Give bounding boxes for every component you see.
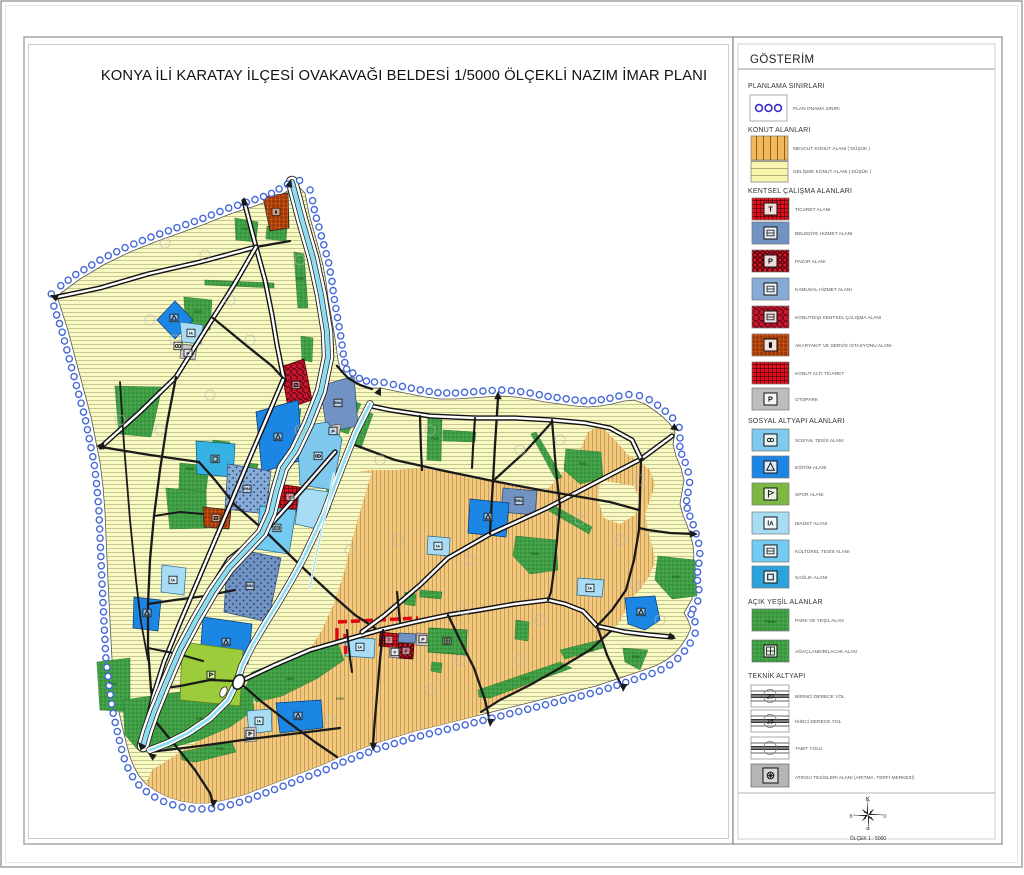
svg-text:PAZAR ALANI: PAZAR ALANI — [795, 259, 826, 265]
svg-text:OTOPARK: OTOPARK — [795, 397, 819, 403]
svg-text:P: P — [768, 395, 773, 404]
svg-text:KAMUSAL HİZMET ALANI: KAMUSAL HİZMET ALANI — [795, 286, 852, 293]
svg-text:BHA: BHA — [335, 401, 343, 405]
svg-text:B: B — [849, 814, 852, 819]
svg-text:KONUT ALANLARI: KONUT ALANLARI — [748, 127, 811, 134]
svg-text:BİRİNCİ DERECE YOL: BİRİNCİ DERECE YOL — [795, 693, 845, 700]
svg-text:PARK: PARK — [521, 677, 530, 681]
svg-text:ATIKSU TESİSLERİ ALANI (ARITMA: ATIKSU TESİSLERİ ALANI (ARITMA, TERFİ ME… — [795, 774, 915, 781]
svg-text:KENTSEL ÇALIŞMA ALANLARI: KENTSEL ÇALIŞMA ALANLARI — [748, 188, 852, 195]
svg-text:TİCARET ALANI: TİCARET ALANI — [795, 206, 830, 213]
svg-text:GELİŞME KONUT ALANI ( DÜŞÜK ): GELİŞME KONUT ALANI ( DÜŞÜK ) — [793, 168, 872, 175]
svg-text:SPOR ALANI: SPOR ALANI — [795, 492, 824, 498]
svg-text:PARK: PARK — [579, 462, 588, 466]
svg-text:P: P — [768, 257, 773, 266]
svg-text:İA: İA — [588, 586, 592, 591]
svg-text:KONUT ALTI TİCARET: KONUT ALTI TİCARET — [795, 370, 844, 377]
svg-text:PLAN ONAMA SINIRI: PLAN ONAMA SINIRI — [793, 106, 840, 112]
svg-text:PARK: PARK — [296, 277, 305, 281]
svg-text:KONUTDIŞI KENTSEL ÇALIŞMA ALAN: KONUTDIŞI KENTSEL ÇALIŞMA ALANI — [795, 315, 881, 321]
svg-text:İA: İA — [767, 519, 774, 527]
svg-text:PARK: PARK — [109, 682, 118, 686]
svg-text:PARK: PARK — [586, 649, 595, 653]
svg-text:T: T — [289, 495, 292, 501]
svg-text:İBADET ALANI: İBADET ALANI — [795, 520, 827, 527]
svg-text:PARK: PARK — [336, 697, 345, 701]
svg-text:20: 20 — [766, 693, 774, 700]
svg-text:15: 15 — [766, 718, 774, 725]
svg-text:BHA: BHA — [244, 487, 252, 491]
svg-text:PARK: PARK — [196, 717, 205, 721]
svg-text:İA: İA — [171, 578, 175, 583]
svg-text:PARK: PARK — [765, 619, 776, 624]
svg-text:AÇIK YEŞİL ALANLAR: AÇIK YEŞİL ALANLAR — [748, 597, 823, 606]
svg-text:PARK: PARK — [431, 437, 440, 441]
svg-text:PARK: PARK — [672, 575, 681, 579]
svg-text:PARK: PARK — [194, 310, 203, 314]
svg-text:MEVCUT KONUT ALANI ( DÜŞÜK ): MEVCUT KONUT ALANI ( DÜŞÜK ) — [793, 145, 871, 152]
svg-text:PARK: PARK — [632, 655, 641, 659]
svg-text:İA: İA — [358, 645, 362, 650]
svg-text:İA: İA — [189, 331, 193, 336]
svg-text:İA: İA — [436, 544, 440, 549]
svg-text:PARK: PARK — [531, 552, 540, 556]
svg-text:BELEDİYE HİZMET ALANI: BELEDİYE HİZMET ALANI — [795, 230, 853, 237]
svg-text:KÜLTÜREL TESİS ALANI: KÜLTÜREL TESİS ALANI — [795, 548, 850, 555]
svg-text:PARK VE YEŞİL ALAN: PARK VE YEŞİL ALAN — [795, 617, 844, 624]
svg-text:P: P — [394, 650, 397, 655]
svg-text:SAĞLIK ALANI: SAĞLIK ALANI — [795, 574, 827, 581]
svg-text:ÖLÇEK 1 : 5000: ÖLÇEK 1 : 5000 — [850, 835, 887, 842]
svg-text:BHA: BHA — [516, 499, 524, 503]
svg-text:BHA: BHA — [247, 584, 255, 588]
svg-text:PARK: PARK — [186, 467, 195, 471]
svg-text:GÖSTERİM: GÖSTERİM — [750, 53, 815, 66]
svg-text:PARK: PARK — [242, 227, 251, 231]
svg-text:AKARYAKIT VE SERVİS İSTASYONU: AKARYAKIT VE SERVİS İSTASYONU ALANI — [795, 342, 892, 349]
svg-text:SOSYAL TESİS ALANI: SOSYAL TESİS ALANI — [795, 437, 844, 444]
svg-text:İA: İA — [257, 719, 261, 724]
svg-text:AĞAÇLANDIRILACAK ALAN: AĞAÇLANDIRILACAK ALAN — [795, 648, 857, 655]
svg-text:PARK: PARK — [286, 677, 295, 681]
svg-text:İKİNCİ DERECE YOL: İKİNCİ DERECE YOL — [795, 718, 842, 725]
svg-text:PLANLAMA SINIRLARI: PLANLAMA SINIRLARI — [748, 83, 825, 90]
svg-text:P: P — [405, 649, 408, 654]
svg-text:PARK: PARK — [216, 747, 225, 751]
svg-text:T: T — [388, 638, 391, 643]
svg-text:EĞİTİM ALANI: EĞİTİM ALANI — [795, 464, 826, 471]
svg-text:TEKNİK ALTYAPI: TEKNİK ALTYAPI — [748, 671, 805, 680]
svg-text:KONYA İLİ KARATAY İLÇESİ OVAKA: KONYA İLİ KARATAY İLÇESİ OVAKAVAĞI BELDE… — [101, 66, 707, 84]
svg-text:TABİT YOLU: TABİT YOLU — [795, 745, 823, 752]
svg-text:T: T — [768, 205, 773, 214]
svg-text:SOSYAL ALTYAPI ALANLARI: SOSYAL ALTYAPI ALANLARI — [748, 418, 845, 425]
